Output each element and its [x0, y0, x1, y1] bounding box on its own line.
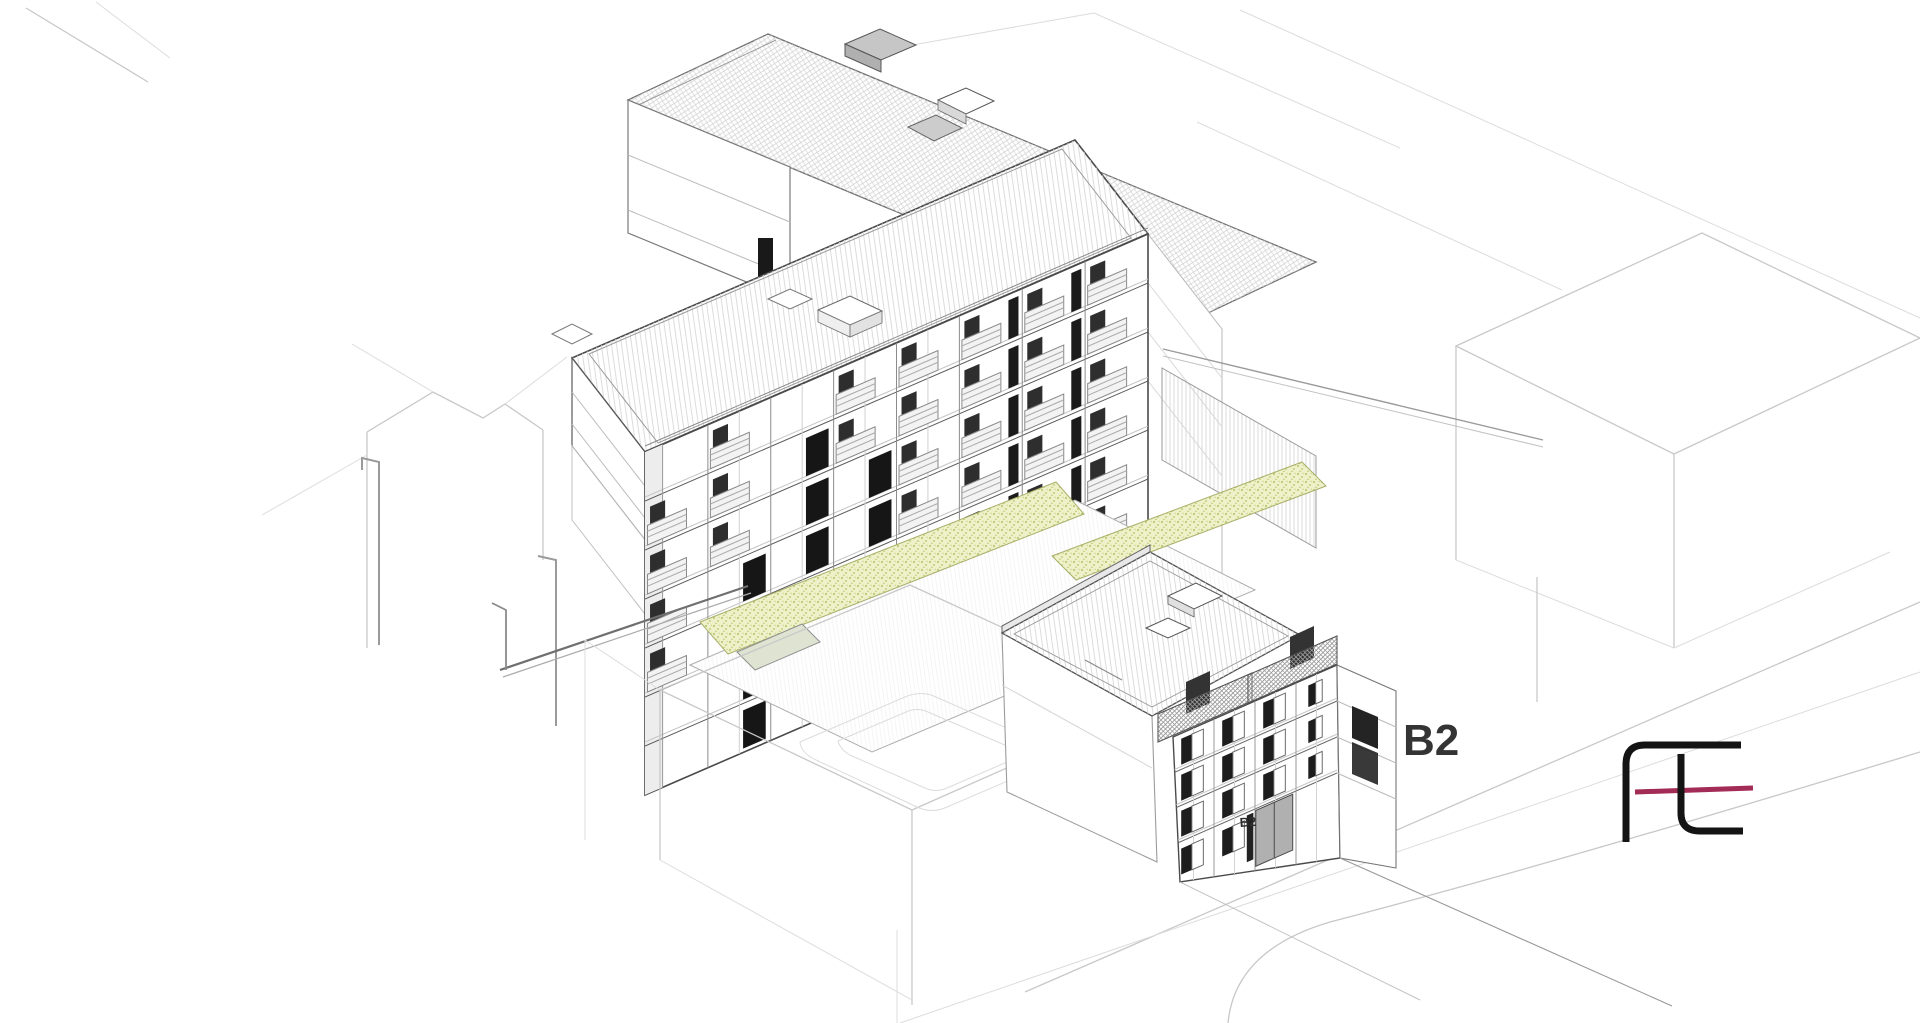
drawing-canvas: B2 B2 [0, 0, 1920, 1023]
architectural-drawing: B2 B2 [0, 0, 1920, 1023]
context-building-left [262, 344, 567, 726]
b2-building: B2 [1002, 545, 1672, 1006]
gutter-profile-left [362, 458, 379, 645]
gutter-profile-right [538, 556, 556, 726]
label-b2-large: B2 [1403, 716, 1459, 765]
label-b2-entrance: B2 [1239, 814, 1257, 830]
b2-return-face [1337, 665, 1396, 868]
logo-red-dash [1635, 788, 1753, 792]
architect-logo [1626, 745, 1753, 842]
